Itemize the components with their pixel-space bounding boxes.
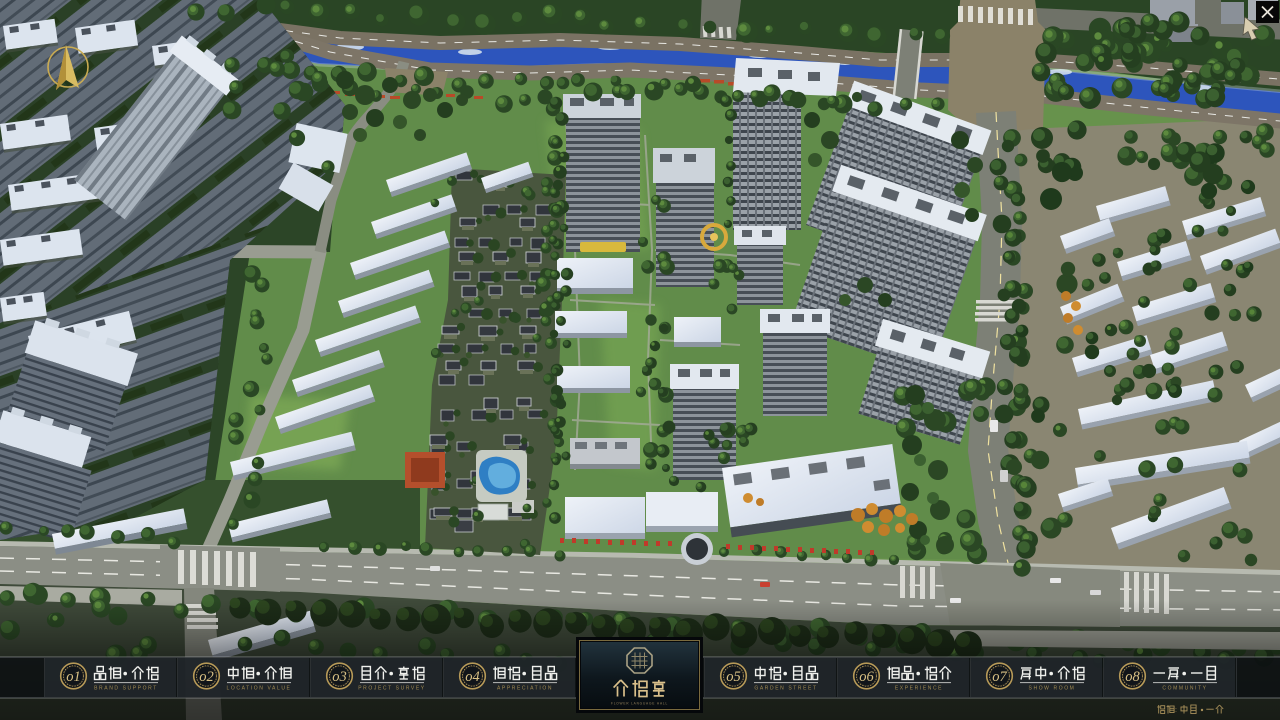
svg-text:SHOW ROOM: SHOW ROOM xyxy=(1029,686,1076,692)
svg-text::: : xyxy=(1175,707,1177,714)
svg-text:FLOWER LANGUAGE HALL: FLOWER LANGUAGE HALL xyxy=(611,702,668,706)
svg-text:o6: o6 xyxy=(859,669,874,685)
svg-text:o4: o4 xyxy=(465,669,480,685)
svg-text:EXPERIENCE: EXPERIENCE xyxy=(895,686,943,692)
svg-text:o5: o5 xyxy=(726,669,741,685)
svg-text:o1: o1 xyxy=(66,669,81,685)
svg-text:o3: o3 xyxy=(332,669,347,685)
svg-text:GARDEN STREET: GARDEN STREET xyxy=(754,686,817,692)
svg-text:o2: o2 xyxy=(199,669,214,685)
svg-text:LOCATION VALUE: LOCATION VALUE xyxy=(226,686,291,692)
svg-text:APPRECIATION: APPRECIATION xyxy=(497,686,553,692)
svg-text:PROJECT SURVEY: PROJECT SURVEY xyxy=(358,686,426,692)
svg-text:o7: o7 xyxy=(992,669,1007,685)
svg-text:COMMUNITY: COMMUNITY xyxy=(1162,686,1207,692)
svg-text:o8: o8 xyxy=(1125,669,1140,685)
svg-text:BRAND SUPPORT: BRAND SUPPORT xyxy=(94,686,158,692)
